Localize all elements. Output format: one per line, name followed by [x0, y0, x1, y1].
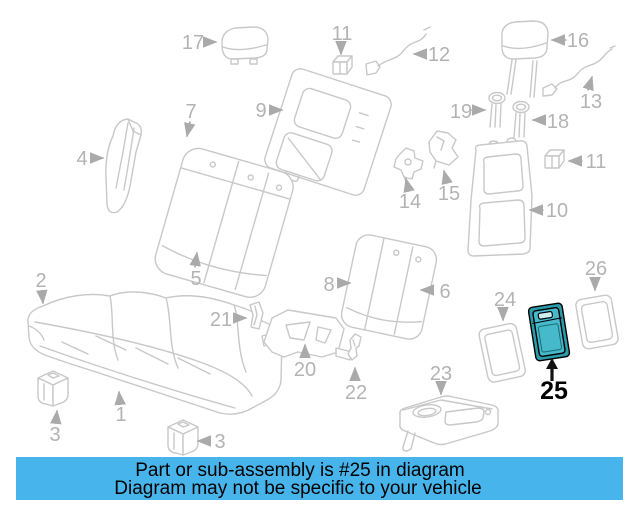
callout-10: 10	[530, 200, 568, 222]
part-3b-label: 3	[214, 431, 225, 453]
part-23-label: 23	[430, 363, 452, 385]
callout-15: 15	[438, 171, 460, 205]
part-7-label: 7	[185, 101, 196, 123]
part-11a-clip-drawing	[333, 56, 352, 74]
callout-3a-arrow	[56, 411, 57, 422]
part-11a-label: 11	[332, 23, 353, 45]
callout-13-arrow	[588, 77, 592, 90]
part-23-armrest-drawing	[400, 396, 498, 451]
callout-14: 14	[399, 179, 421, 213]
callout-2: 2	[35, 270, 46, 303]
part-24-label: 24	[494, 289, 516, 311]
callout-2-arrow	[42, 292, 43, 303]
part-15-label: 15	[438, 183, 460, 205]
part-21-label: 21	[210, 309, 232, 331]
part-18-guide-drawing	[513, 102, 529, 138]
callout-24: 24	[494, 289, 516, 320]
part-9-label: 9	[255, 100, 266, 122]
callout-18: 18	[533, 111, 569, 133]
callout-3b: 3	[198, 431, 226, 453]
part-3a-leg-bracket-drawing	[38, 371, 68, 406]
part-15-bracket-drawing	[429, 131, 458, 168]
part-17-headrest-drawing	[222, 27, 268, 64]
part-11b-label: 11	[586, 151, 607, 173]
part-10-label: 10	[546, 200, 568, 222]
callout-11b: 11	[569, 151, 606, 173]
part-16-headrest-drawing	[502, 21, 548, 97]
part-16-label: 16	[567, 30, 589, 52]
parts-diagram-page: 25 17 9 7 4 11 12 16 13 19 18 14	[0, 0, 640, 512]
part-19-guide-drawing	[489, 93, 505, 128]
part-18-label: 18	[547, 111, 569, 133]
callout-1: 1	[115, 392, 126, 426]
part-10-back-panel-drawing	[468, 138, 532, 256]
part-22-label: 22	[345, 382, 367, 404]
callout-14-arrow	[406, 179, 409, 191]
part-13-label: 13	[580, 91, 602, 113]
part-22-striker-drawing	[348, 334, 361, 360]
callout-7-arrow	[187, 122, 190, 136]
part-13-wire-drawing	[543, 46, 615, 96]
part-3b-leg-bracket-drawing	[168, 420, 198, 455]
part-5-label: 5	[190, 268, 201, 290]
part-12-label: 12	[428, 44, 450, 66]
part-12-wire-drawing	[366, 27, 430, 75]
callout-3a: 3	[49, 411, 60, 446]
part-6-label: 6	[439, 281, 450, 303]
info-banner: Part or sub-assembly is #25 in diagram D…	[16, 457, 623, 500]
callout-23: 23	[430, 363, 452, 394]
callout-1-arrow	[119, 392, 120, 403]
part-20-bracket-drawing	[262, 310, 352, 360]
part-19-label: 19	[450, 101, 472, 123]
callout-19: 19	[450, 101, 485, 123]
part-20-label: 20	[294, 359, 316, 381]
callout-26: 26	[585, 258, 607, 290]
callout-22: 22	[345, 368, 367, 404]
part-26-label: 26	[585, 258, 607, 280]
part-1-label: 1	[115, 404, 126, 426]
part-26-frame-drawing	[575, 294, 619, 349]
callout-4: 4	[76, 148, 103, 170]
part-3a-label: 3	[49, 424, 60, 446]
callout-15-arrow	[444, 171, 447, 183]
part-14-bracket-drawing	[394, 148, 423, 182]
part-8-label: 8	[323, 274, 334, 296]
callout-16: 16	[552, 30, 589, 52]
part-4-bolster-drawing	[106, 119, 141, 213]
callout-11a: 11	[332, 23, 353, 54]
part-25-highlighted-door	[528, 303, 570, 362]
callout-7: 7	[185, 101, 196, 136]
seat-parts-diagram: 25 17 9 7 4 11 12 16 13 19 18 14	[0, 0, 640, 512]
callout-13: 13	[580, 77, 602, 113]
part-25-label: 25	[540, 377, 568, 405]
part-24-frame-drawing	[478, 322, 526, 383]
part-14-label: 14	[399, 191, 421, 213]
callout-17: 17	[182, 32, 216, 54]
part-4-label: 4	[76, 148, 87, 170]
part-2-label: 2	[35, 270, 46, 292]
part-17-label: 17	[182, 32, 204, 54]
part-8-6-seatback-drawing	[339, 233, 439, 342]
callout-12: 12	[414, 44, 450, 66]
part-11b-clip-drawing	[545, 150, 564, 168]
banner-line-2: Diagram may not be specific to your vehi…	[114, 478, 482, 499]
